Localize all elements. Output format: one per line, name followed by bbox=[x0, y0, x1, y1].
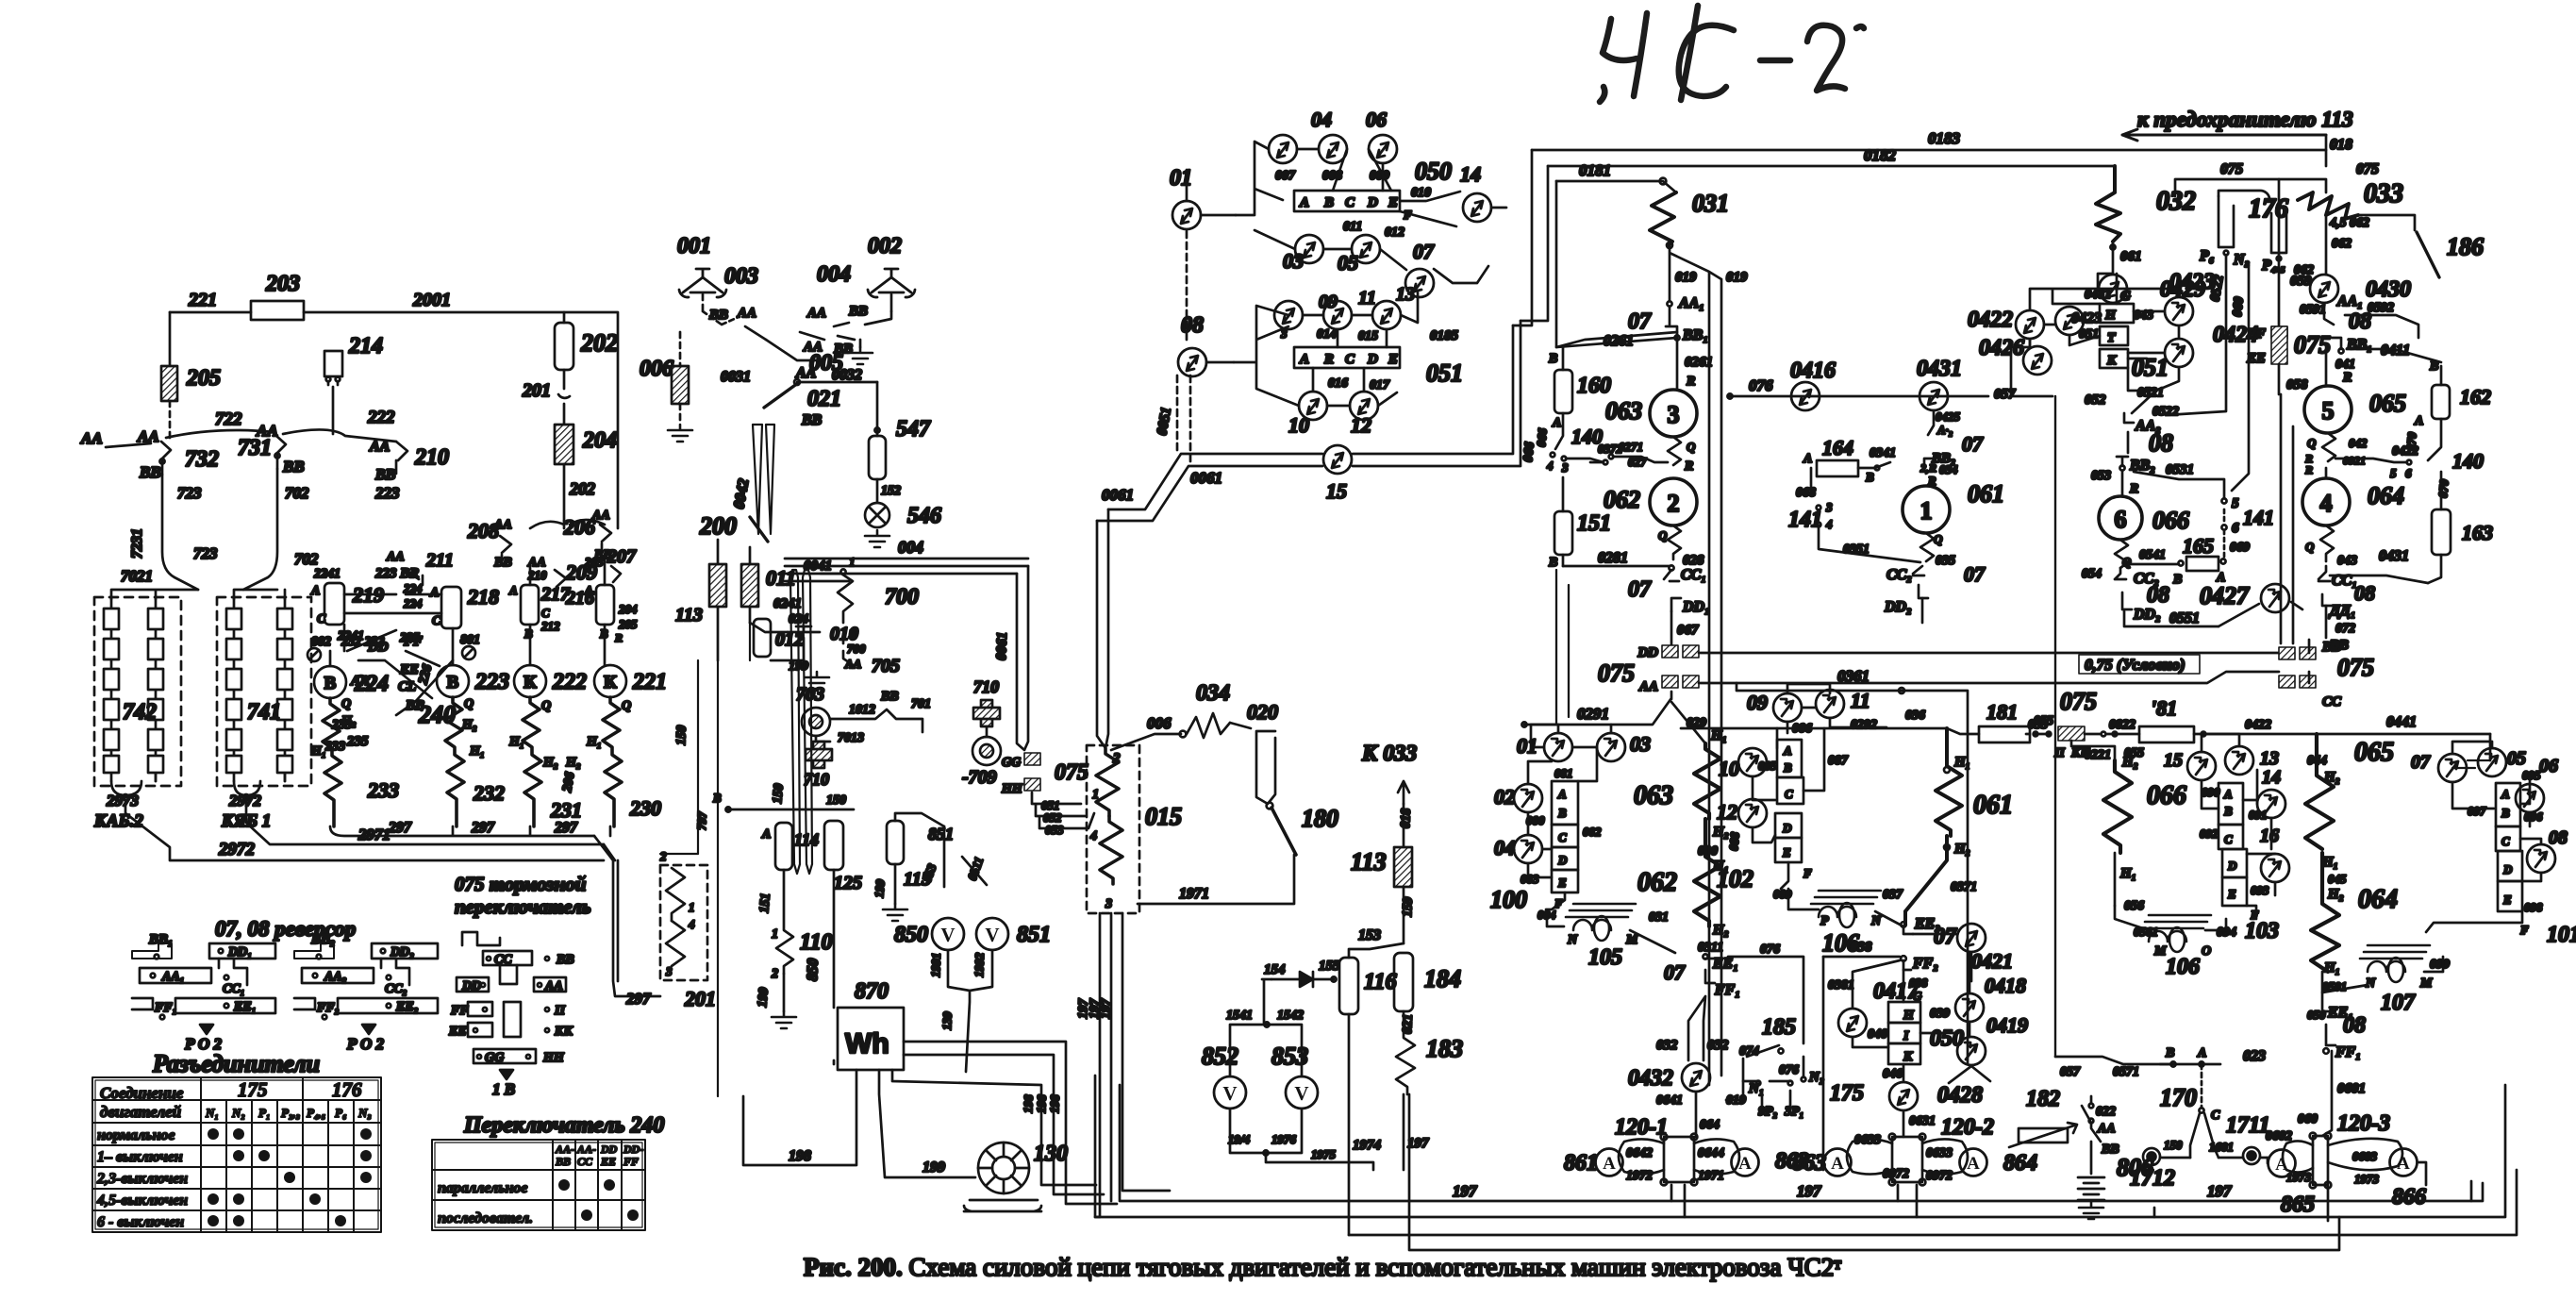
svg-text:016: 016 bbox=[1328, 376, 1348, 391]
svg-text:007: 007 bbox=[1275, 169, 1296, 183]
svg-text:068: 068 bbox=[1796, 486, 1816, 500]
svg-text:701: 701 bbox=[911, 697, 931, 711]
svg-text:065: 065 bbox=[2369, 390, 2406, 417]
svg-text:2001: 2001 bbox=[412, 290, 451, 310]
svg-text:232: 232 bbox=[473, 781, 505, 805]
svg-text:EE: EE bbox=[448, 1025, 467, 1039]
svg-text:6: 6 bbox=[2115, 506, 2127, 533]
svg-text:067: 067 bbox=[1677, 623, 1699, 638]
svg-text:742: 742 bbox=[123, 700, 157, 725]
svg-text:двигателей: двигателей bbox=[100, 1103, 181, 1121]
svg-text:038: 038 bbox=[1851, 940, 1872, 955]
svg-text:702: 702 bbox=[294, 550, 319, 568]
svg-text:0181: 0181 bbox=[1579, 161, 1611, 179]
svg-text:4: 4 bbox=[1089, 829, 1097, 843]
svg-text:07: 07 bbox=[1628, 577, 1652, 602]
svg-text:C: C bbox=[2501, 834, 2510, 848]
svg-text:059: 059 bbox=[2290, 274, 2312, 289]
svg-text:07: 07 bbox=[1413, 240, 1435, 263]
svg-text:10: 10 bbox=[1288, 413, 1309, 437]
svg-text:К: К bbox=[2106, 354, 2118, 368]
svg-text:6 - выключен: 6 - выключен bbox=[97, 1214, 184, 1230]
svg-text:FF: FF bbox=[2246, 326, 2266, 342]
svg-text:050: 050 bbox=[1415, 158, 1452, 185]
svg-text:02: 02 bbox=[1494, 785, 1515, 809]
svg-text:063: 063 bbox=[1634, 781, 1673, 810]
svg-text:120-3: 120-3 bbox=[2337, 1111, 2390, 1136]
svg-text:225: 225 bbox=[399, 631, 420, 645]
svg-text:085: 085 bbox=[1758, 759, 1777, 773]
svg-text:19/4: 19/4 bbox=[1228, 1132, 1251, 1146]
svg-text:CC₁: CC₁ bbox=[223, 982, 245, 996]
svg-text:155: 155 bbox=[1319, 959, 1340, 974]
svg-text:197: 197 bbox=[1797, 1182, 1822, 1200]
svg-text:EE: EE bbox=[399, 662, 419, 677]
svg-text:0221: 0221 bbox=[2085, 748, 2111, 762]
svg-text:091: 091 bbox=[2249, 808, 2268, 822]
svg-text:H: H bbox=[1903, 1009, 1915, 1023]
svg-text:H₂: H₂ bbox=[2121, 755, 2138, 770]
svg-text:096: 096 bbox=[2524, 809, 2543, 824]
svg-text:0521: 0521 bbox=[2137, 386, 2164, 400]
svg-text:199: 199 bbox=[922, 1159, 945, 1176]
svg-text:3: 3 bbox=[1668, 401, 1680, 428]
svg-text:722: 722 bbox=[215, 409, 242, 429]
svg-text:AA-: AA- bbox=[555, 1143, 574, 1156]
svg-text:061: 061 bbox=[1973, 791, 2013, 820]
svg-text:061: 061 bbox=[2120, 249, 2142, 264]
svg-text:G: G bbox=[2120, 289, 2131, 304]
svg-text:064: 064 bbox=[1700, 1118, 1720, 1132]
svg-text:A: A bbox=[584, 583, 593, 597]
svg-text:N: N bbox=[2365, 976, 2376, 991]
svg-text:AA₁: AA₁ bbox=[161, 970, 185, 984]
svg-text:223 BR: 223 BR bbox=[374, 566, 419, 581]
svg-text:A: A bbox=[1783, 743, 1792, 758]
svg-text:II: II bbox=[554, 1004, 565, 1018]
svg-text:175: 175 bbox=[238, 1078, 268, 1101]
svg-text:022: 022 bbox=[2096, 1105, 2116, 1119]
svg-text:223: 223 bbox=[474, 670, 509, 694]
svg-text:P₁: P₁ bbox=[258, 1106, 270, 1120]
svg-text:08: 08 bbox=[2549, 827, 2568, 848]
svg-text:222: 222 bbox=[367, 408, 395, 427]
svg-text:14: 14 bbox=[2262, 767, 2281, 788]
svg-text:1: 1 bbox=[1920, 497, 1933, 525]
svg-text:099: 099 bbox=[2430, 958, 2450, 972]
svg-text:R: R bbox=[1686, 375, 1695, 389]
svg-text:BB: BB bbox=[139, 463, 161, 481]
svg-text:199: 199 bbox=[756, 987, 772, 1008]
svg-text:083: 083 bbox=[1521, 872, 1539, 886]
svg-text:A·₂: A·₂ bbox=[1936, 423, 1953, 437]
svg-text:05: 05 bbox=[1338, 251, 1358, 275]
svg-text:A: A bbox=[1299, 195, 1309, 210]
svg-text:140: 140 bbox=[2452, 449, 2484, 473]
svg-text:08: 08 bbox=[2349, 309, 2371, 334]
svg-text:B: B bbox=[2223, 804, 2233, 818]
svg-text:710: 710 bbox=[804, 770, 829, 789]
svg-text:0291: 0291 bbox=[1577, 705, 1609, 723]
svg-text:FF: FF bbox=[623, 1155, 639, 1168]
svg-text:НН: НН bbox=[1001, 782, 1023, 796]
svg-text:062: 062 bbox=[1604, 486, 1640, 513]
svg-text:AA: AA bbox=[350, 674, 370, 689]
svg-text:139: 139 bbox=[939, 1011, 955, 1031]
svg-text:B: B bbox=[1548, 556, 1557, 570]
svg-text:0292: 0292 bbox=[1851, 718, 1877, 732]
svg-text:FF: FF bbox=[450, 1004, 469, 1018]
svg-text:N: N bbox=[1870, 914, 1882, 928]
svg-text:08: 08 bbox=[2343, 1013, 2366, 1038]
svg-text:0551: 0551 bbox=[2169, 610, 2200, 626]
svg-text:10: 10 bbox=[1719, 757, 1739, 780]
svg-text:AA-: AA- bbox=[576, 1143, 596, 1156]
svg-text:235: 235 bbox=[346, 734, 369, 749]
svg-text:CC₂: CC₂ bbox=[1886, 567, 1912, 583]
svg-text:150: 150 bbox=[771, 783, 787, 804]
svg-text:212: 212 bbox=[540, 619, 560, 633]
svg-text:153: 153 bbox=[1358, 927, 1381, 943]
svg-text:0261: 0261 bbox=[1604, 333, 1634, 349]
svg-text:732: 732 bbox=[185, 447, 219, 472]
svg-text:П: П bbox=[2053, 746, 2066, 760]
svg-text:140: 140 bbox=[1571, 425, 1603, 448]
svg-text:105: 105 bbox=[1588, 945, 1622, 970]
svg-text:054: 054 bbox=[2082, 567, 2102, 581]
svg-text:2241: 2241 bbox=[313, 567, 341, 581]
svg-text:297: 297 bbox=[471, 820, 495, 836]
svg-text:012: 012 bbox=[1385, 225, 1404, 240]
svg-text:4: 4 bbox=[688, 917, 695, 931]
svg-text:214: 214 bbox=[348, 334, 383, 359]
svg-text:15: 15 bbox=[2164, 750, 2183, 771]
svg-text:7013: 7013 bbox=[838, 731, 864, 745]
svg-text:181: 181 bbox=[1986, 700, 2018, 724]
svg-text:к предохранителю 113: к предохранителю 113 bbox=[2137, 108, 2353, 131]
svg-text:864: 864 bbox=[2003, 1151, 2037, 1176]
svg-text:2971: 2971 bbox=[357, 826, 391, 843]
svg-text:224: 224 bbox=[403, 596, 423, 610]
svg-text:1971: 1971 bbox=[1698, 1169, 1724, 1183]
svg-text:P: P bbox=[1820, 914, 1829, 928]
svg-text:R: R bbox=[2304, 463, 2313, 476]
svg-text:0361: 0361 bbox=[1837, 667, 1870, 685]
svg-text:098: 098 bbox=[2524, 900, 2543, 914]
svg-text:202: 202 bbox=[580, 329, 618, 357]
svg-text:0603: 0603 bbox=[2352, 1149, 2378, 1163]
svg-text:0281: 0281 bbox=[1598, 550, 1628, 566]
svg-text:004: 004 bbox=[817, 262, 851, 287]
svg-text:233: 233 bbox=[331, 718, 352, 732]
svg-text:861: 861 bbox=[1564, 1151, 1598, 1176]
svg-text:019: 019 bbox=[1675, 270, 1697, 285]
svg-text:723: 723 bbox=[193, 544, 218, 562]
svg-text:К: К bbox=[604, 673, 617, 692]
svg-text:07: 07 bbox=[1628, 309, 1652, 334]
svg-text:C: C bbox=[541, 606, 550, 620]
svg-text:Q: Q bbox=[1687, 440, 1696, 454]
svg-text:198: 198 bbox=[789, 1148, 811, 1164]
svg-text:0571: 0571 bbox=[2113, 1065, 2139, 1079]
svg-text:A: A bbox=[508, 583, 518, 597]
svg-text:1973: 1973 bbox=[2354, 1172, 2380, 1186]
svg-text:151: 151 bbox=[757, 892, 773, 913]
svg-text:К 033: К 033 bbox=[1361, 742, 1417, 766]
svg-text:5: 5 bbox=[2322, 397, 2335, 425]
svg-text:107: 107 bbox=[2381, 991, 2416, 1015]
svg-text:H₂: H₂ bbox=[542, 756, 558, 770]
svg-text:032: 032 bbox=[1656, 1038, 1678, 1053]
svg-text:852: 852 bbox=[1202, 1042, 1238, 1070]
svg-text:102: 102 bbox=[1717, 865, 1753, 892]
svg-text:E: E bbox=[2502, 892, 2512, 907]
svg-text:0422: 0422 bbox=[1968, 308, 2013, 332]
svg-text:197: 197 bbox=[1453, 1182, 1478, 1200]
svg-text:R: R bbox=[2342, 371, 2352, 385]
svg-text:CL: CL bbox=[398, 679, 416, 694]
svg-text:110: 110 bbox=[800, 930, 833, 955]
svg-text:N₂: N₂ bbox=[1808, 1070, 1824, 1085]
svg-text:I: I bbox=[1903, 1029, 1909, 1043]
svg-text:07: 07 bbox=[1964, 562, 1986, 586]
svg-text:7021: 7021 bbox=[121, 567, 153, 585]
svg-text:DD: DD bbox=[1637, 645, 1658, 660]
svg-text:097: 097 bbox=[2468, 804, 2486, 818]
svg-text:Q: Q bbox=[541, 699, 551, 713]
svg-text:218: 218 bbox=[467, 585, 499, 609]
svg-text:CC₁: CC₁ bbox=[1681, 567, 1706, 583]
svg-text:183: 183 bbox=[1426, 1035, 1463, 1062]
svg-text:0531: 0531 bbox=[2166, 462, 2194, 477]
svg-text:GG: GG bbox=[485, 1051, 504, 1065]
svg-text:065: 065 bbox=[2354, 738, 2394, 767]
svg-text:B: B bbox=[1783, 760, 1792, 775]
svg-text:232 232: 232 232 bbox=[341, 635, 385, 649]
svg-text:021: 021 bbox=[807, 387, 841, 411]
svg-text:197: 197 bbox=[2207, 1182, 2233, 1200]
svg-text:0422: 0422 bbox=[2245, 718, 2271, 732]
svg-text:032: 032 bbox=[2156, 187, 2196, 216]
svg-text:0431: 0431 bbox=[1917, 357, 1962, 381]
svg-text:203: 203 bbox=[584, 555, 604, 569]
svg-text:ДД₁: ДД₁ bbox=[2328, 603, 2355, 619]
svg-text:705: 705 bbox=[872, 656, 900, 676]
svg-text:6: 6 bbox=[2405, 466, 2412, 480]
svg-text:072: 072 bbox=[2335, 622, 2355, 636]
svg-text:B: B bbox=[1548, 352, 1557, 366]
svg-text:E: E bbox=[1388, 352, 1398, 367]
svg-text:060: 060 bbox=[2298, 1112, 2318, 1126]
svg-text:198: 198 bbox=[1047, 1094, 1062, 1114]
svg-text:031: 031 bbox=[1649, 910, 1669, 925]
svg-text:1973: 1973 bbox=[2286, 1170, 2312, 1184]
svg-text:223: 223 bbox=[374, 484, 400, 502]
svg-text:FF₁: FF₁ bbox=[1714, 982, 1740, 998]
svg-text:240: 240 bbox=[418, 701, 456, 728]
svg-text:0822: 0822 bbox=[2109, 718, 2136, 732]
svg-text:EE₁: EE₁ bbox=[1712, 956, 1738, 972]
svg-text:700: 700 bbox=[847, 642, 866, 656]
svg-text:BB₁: BB₁ bbox=[148, 932, 173, 947]
svg-text:176: 176 bbox=[2249, 194, 2288, 224]
svg-text:850: 850 bbox=[894, 923, 928, 947]
svg-text:851: 851 bbox=[1017, 923, 1051, 947]
svg-text:Q: Q bbox=[2122, 555, 2132, 569]
svg-text:150: 150 bbox=[826, 793, 846, 808]
svg-text:2: 2 bbox=[848, 626, 856, 641]
svg-text:DD₂: DD₂ bbox=[1884, 599, 1912, 615]
svg-text:103: 103 bbox=[2245, 919, 2279, 943]
svg-text:116: 116 bbox=[1364, 970, 1397, 994]
svg-text:066: 066 bbox=[1534, 427, 1550, 447]
svg-text:9P₂: 9P₂ bbox=[1758, 1105, 1778, 1119]
svg-text:H₁: H₁ bbox=[1710, 728, 1727, 743]
svg-text:H₁: H₁ bbox=[2323, 960, 2340, 976]
svg-text:1976: 1976 bbox=[1271, 1132, 1297, 1146]
svg-text:P₂,₃: P₂,₃ bbox=[281, 1106, 300, 1120]
svg-text:AA: AA bbox=[137, 427, 159, 445]
svg-text:150: 150 bbox=[674, 726, 690, 746]
svg-text:0602: 0602 bbox=[2266, 1129, 2292, 1143]
svg-text:AA: AA bbox=[1638, 679, 1658, 694]
svg-text:863: 863 bbox=[1792, 1151, 1826, 1176]
svg-text:070: 070 bbox=[2435, 478, 2451, 498]
svg-text:P О 2: P О 2 bbox=[346, 1035, 385, 1053]
svg-text:0644: 0644 bbox=[1698, 1146, 1724, 1160]
svg-text:AA₁: AA₁ bbox=[2336, 293, 2363, 309]
svg-text:035: 035 bbox=[1936, 554, 1955, 568]
svg-text:700: 700 bbox=[885, 585, 919, 609]
svg-text:055: 055 bbox=[2028, 718, 2048, 732]
svg-text:2,R: 2,R bbox=[1920, 461, 1936, 475]
svg-text:023: 023 bbox=[2243, 1048, 2266, 1064]
svg-text:P₆: P₆ bbox=[335, 1106, 347, 1120]
svg-text:F: F bbox=[1803, 866, 1812, 880]
svg-text:A: A bbox=[2223, 787, 2233, 801]
svg-text:0441: 0441 bbox=[2386, 714, 2417, 730]
svg-text:4,5 062: 4,5 062 bbox=[2329, 216, 2369, 230]
svg-text:AA: AA bbox=[369, 439, 391, 455]
svg-text:851: 851 bbox=[928, 825, 954, 843]
svg-text:221: 221 bbox=[632, 670, 667, 694]
svg-text:BB: BB bbox=[880, 690, 899, 704]
svg-text:2,3-выключен: 2,3-выключен bbox=[96, 1171, 188, 1187]
svg-text:BB: BB bbox=[801, 412, 823, 428]
svg-text:090: 090 bbox=[2202, 785, 2220, 799]
svg-text:702: 702 bbox=[285, 484, 309, 502]
svg-text:-709: -709 bbox=[962, 767, 997, 788]
svg-text:0032: 0032 bbox=[832, 367, 862, 383]
svg-text:04: 04 bbox=[1494, 836, 1515, 859]
svg-text:075: 075 bbox=[2356, 161, 2379, 177]
svg-text:197: 197 bbox=[1407, 1136, 1429, 1151]
svg-text:H₁: H₁ bbox=[586, 735, 602, 749]
svg-text:086: 086 bbox=[1792, 722, 1812, 736]
svg-text:151: 151 bbox=[1577, 511, 1611, 536]
svg-text:1991: 1991 bbox=[928, 953, 943, 978]
svg-text:092: 092 bbox=[2200, 826, 2219, 841]
svg-text:710: 710 bbox=[973, 677, 999, 696]
svg-text:3: 3 bbox=[665, 964, 673, 978]
svg-text:066: 066 bbox=[2152, 507, 2189, 534]
svg-text:015: 015 bbox=[1358, 329, 1378, 343]
svg-text:100: 100 bbox=[1490, 886, 1527, 913]
svg-text:001: 001 bbox=[677, 234, 711, 259]
svg-text:018: 018 bbox=[1399, 809, 1414, 829]
svg-text:004: 004 bbox=[898, 538, 923, 557]
svg-text:1541: 1541 bbox=[1226, 1009, 1253, 1023]
svg-text:057: 057 bbox=[1994, 387, 2016, 402]
svg-text:074: 074 bbox=[1739, 1044, 1759, 1059]
svg-text:E: E bbox=[1388, 195, 1398, 210]
svg-text:07: 07 bbox=[1934, 925, 1957, 949]
svg-text:011: 011 bbox=[1343, 220, 1362, 234]
svg-text:R: R bbox=[2129, 482, 2138, 496]
svg-text:062: 062 bbox=[2332, 237, 2352, 251]
svg-text:731: 731 bbox=[238, 436, 272, 460]
svg-text:0430: 0430 bbox=[2366, 277, 2411, 302]
svg-text:114: 114 bbox=[794, 830, 819, 849]
svg-text:AA: AA bbox=[386, 550, 405, 564]
svg-text:12: 12 bbox=[1717, 800, 1737, 824]
svg-text:3: 3 bbox=[1561, 460, 1569, 475]
svg-text:C: C bbox=[1345, 195, 1355, 210]
svg-text:2973: 2973 bbox=[106, 792, 140, 809]
svg-text:DD: DD bbox=[461, 979, 481, 993]
svg-text:Q: Q bbox=[1934, 532, 1943, 546]
svg-text:C: C bbox=[1785, 787, 1793, 801]
svg-text:064: 064 bbox=[2358, 885, 2398, 914]
svg-text:185: 185 bbox=[1762, 1015, 1796, 1040]
svg-text:03: 03 bbox=[1630, 732, 1651, 756]
svg-text:221: 221 bbox=[188, 290, 217, 310]
svg-text:006: 006 bbox=[1147, 714, 1172, 732]
svg-text:N₁: N₁ bbox=[205, 1106, 219, 1120]
svg-text:13: 13 bbox=[1396, 284, 1415, 305]
svg-text:E: E bbox=[1557, 876, 1567, 890]
svg-text:O: O bbox=[2202, 944, 2211, 959]
svg-text:H₂: H₂ bbox=[1712, 923, 1729, 938]
svg-text:0416: 0416 bbox=[1790, 359, 1836, 383]
svg-text:199: 199 bbox=[872, 878, 888, 898]
svg-text:Разъединители: Разъединители bbox=[152, 1050, 320, 1077]
svg-text:182: 182 bbox=[2026, 1087, 2060, 1111]
svg-text:1971: 1971 bbox=[1179, 886, 1209, 902]
svg-text:014: 014 bbox=[1317, 327, 1337, 342]
svg-text:AA: AA bbox=[493, 518, 512, 532]
svg-text:093: 093 bbox=[2251, 883, 2269, 897]
svg-text:202: 202 bbox=[569, 479, 595, 498]
svg-text:201: 201 bbox=[522, 380, 551, 401]
svg-text:M: M bbox=[2153, 944, 2167, 959]
svg-text:076: 076 bbox=[1749, 376, 1773, 394]
svg-text:5: 5 bbox=[2232, 496, 2239, 511]
svg-text:150: 150 bbox=[2164, 1138, 2183, 1152]
svg-text:01: 01 bbox=[1170, 166, 1192, 191]
svg-text:A: A bbox=[1557, 787, 1567, 801]
svg-text:06: 06 bbox=[1366, 108, 1387, 131]
svg-text:082: 082 bbox=[1583, 825, 1602, 839]
svg-text:211: 211 bbox=[425, 550, 454, 571]
svg-text:07: 07 bbox=[1664, 960, 1686, 984]
svg-text:B: B bbox=[1323, 195, 1334, 210]
svg-text:1712: 1712 bbox=[2130, 1166, 2175, 1191]
svg-text:BB: BB bbox=[493, 556, 512, 570]
svg-text:163: 163 bbox=[2462, 521, 2493, 544]
svg-text:N₃: N₃ bbox=[2233, 252, 2250, 268]
svg-text:H₂: H₂ bbox=[565, 756, 581, 770]
